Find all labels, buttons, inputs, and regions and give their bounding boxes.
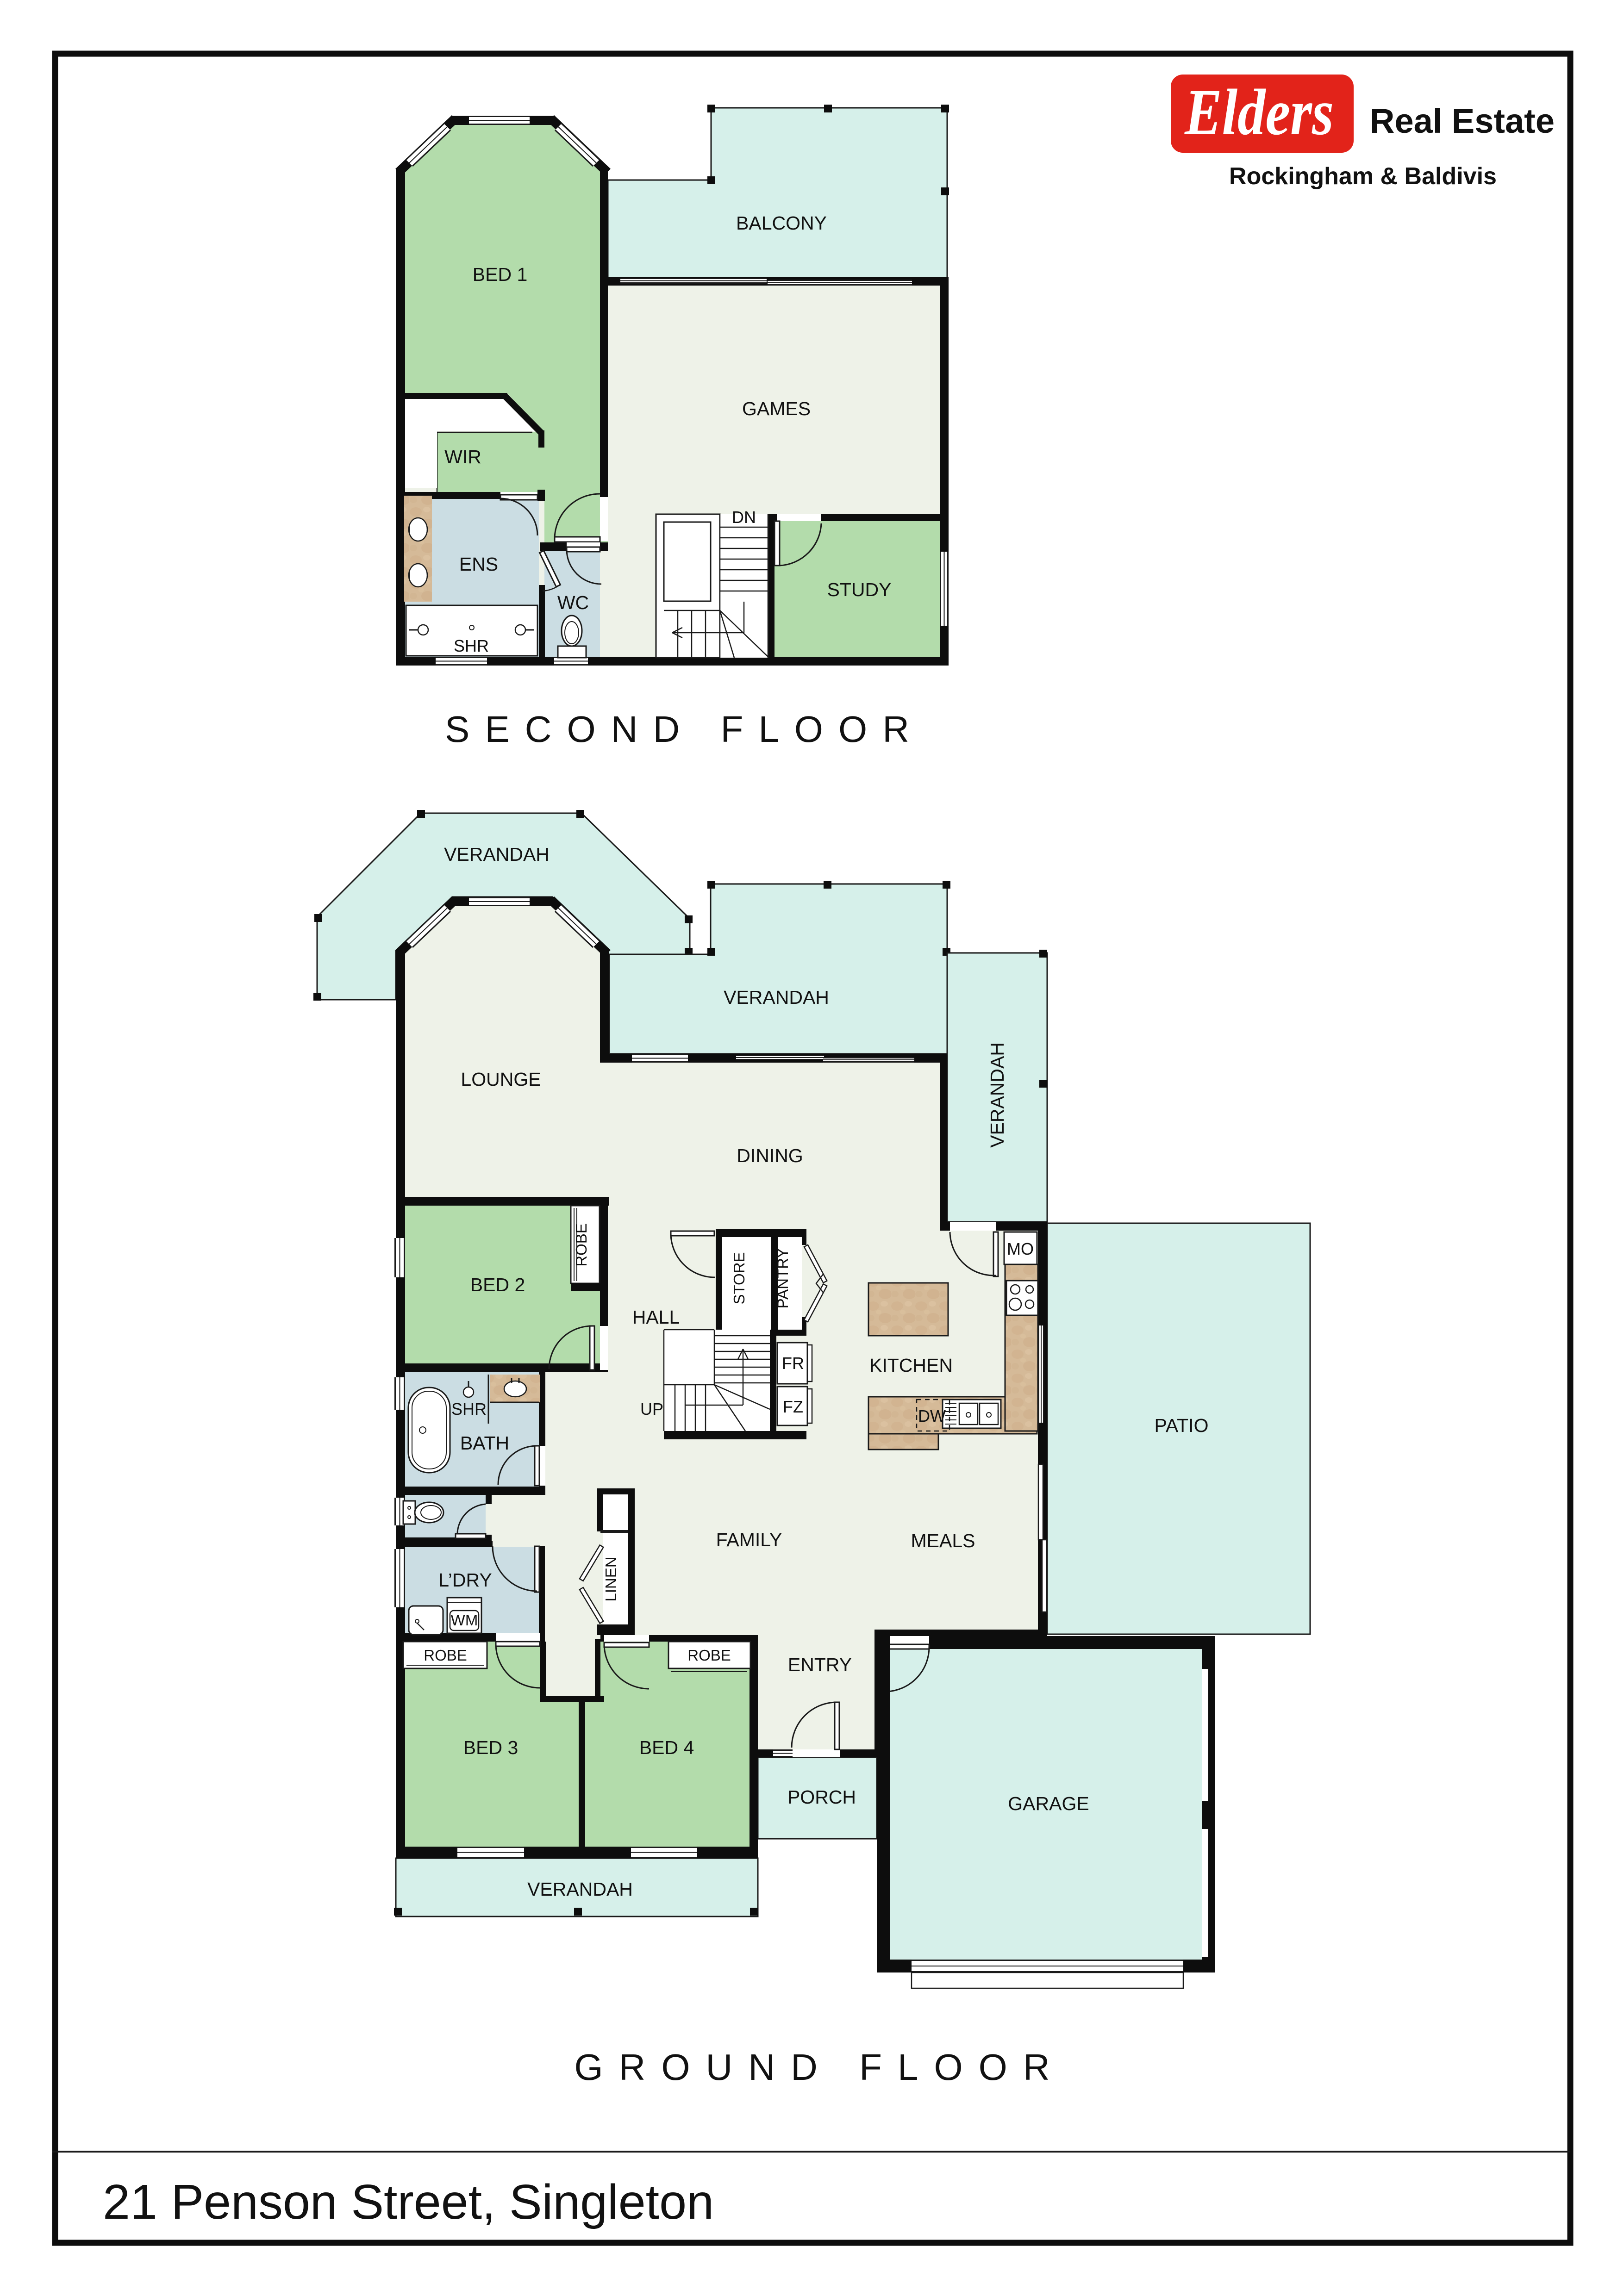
svg-text:BED 4: BED 4 [639,1737,694,1758]
svg-text:BED 2: BED 2 [470,1274,525,1295]
svg-text:BATH: BATH [460,1432,509,1454]
svg-text:PATIO: PATIO [1155,1415,1209,1436]
svg-text:SECOND FLOOR: SECOND FLOOR [445,709,924,750]
svg-text:PORCH: PORCH [787,1786,856,1808]
svg-text:VERANDAH: VERANDAH [444,844,550,865]
svg-text:DW: DW [918,1406,946,1425]
svg-text:PANTRY: PANTRY [774,1248,791,1309]
svg-text:WC: WC [557,592,589,613]
svg-text:BALCONY: BALCONY [736,212,827,234]
svg-text:MO: MO [1007,1239,1034,1258]
svg-text:L’DRY: L’DRY [438,1569,492,1591]
svg-text:LOUNGE: LOUNGE [461,1069,541,1090]
svg-text:KITCHEN: KITCHEN [869,1355,953,1376]
svg-text:DINING: DINING [737,1145,803,1166]
svg-text:WIR: WIR [444,446,481,467]
svg-text:BED 3: BED 3 [463,1737,518,1758]
svg-text:WM: WM [451,1612,478,1629]
svg-text:ENTRY: ENTRY [788,1654,852,1675]
svg-text:DN: DN [732,508,756,527]
svg-text:LINEN: LINEN [602,1556,619,1601]
svg-text:VERANDAH: VERANDAH [987,1042,1008,1148]
svg-text:Real Estate: Real Estate [1370,102,1555,140]
svg-text:SHR: SHR [454,636,489,655]
svg-text:ROBE: ROBE [573,1223,590,1267]
svg-text:GARAGE: GARAGE [1008,1793,1089,1814]
svg-text:VERANDAH: VERANDAH [724,987,829,1008]
svg-text:STORE: STORE [731,1252,748,1304]
svg-text:ROBE: ROBE [687,1647,731,1664]
svg-text:21 Penson Street, Singleton: 21 Penson Street, Singleton [103,2175,714,2229]
svg-text:MEALS: MEALS [911,1530,975,1551]
svg-text:BED 1: BED 1 [473,264,528,285]
svg-text:FR: FR [782,1354,804,1373]
svg-text:Elders: Elders [1184,75,1334,149]
svg-text:SHR: SHR [451,1400,487,1419]
svg-text:GROUND FLOOR: GROUND FLOOR [574,2047,1065,2088]
svg-text:STUDY: STUDY [827,579,892,600]
svg-text:FZ: FZ [783,1397,803,1416]
svg-text:HALL: HALL [632,1307,680,1328]
svg-text:ROBE: ROBE [424,1647,467,1664]
svg-text:GAMES: GAMES [742,398,811,419]
svg-text:Rockingham & Baldivis: Rockingham & Baldivis [1229,163,1497,190]
svg-text:ENS: ENS [459,554,498,575]
svg-text:VERANDAH: VERANDAH [527,1879,633,1900]
svg-text:FAMILY: FAMILY [716,1529,782,1550]
svg-text:UP: UP [640,1400,663,1419]
